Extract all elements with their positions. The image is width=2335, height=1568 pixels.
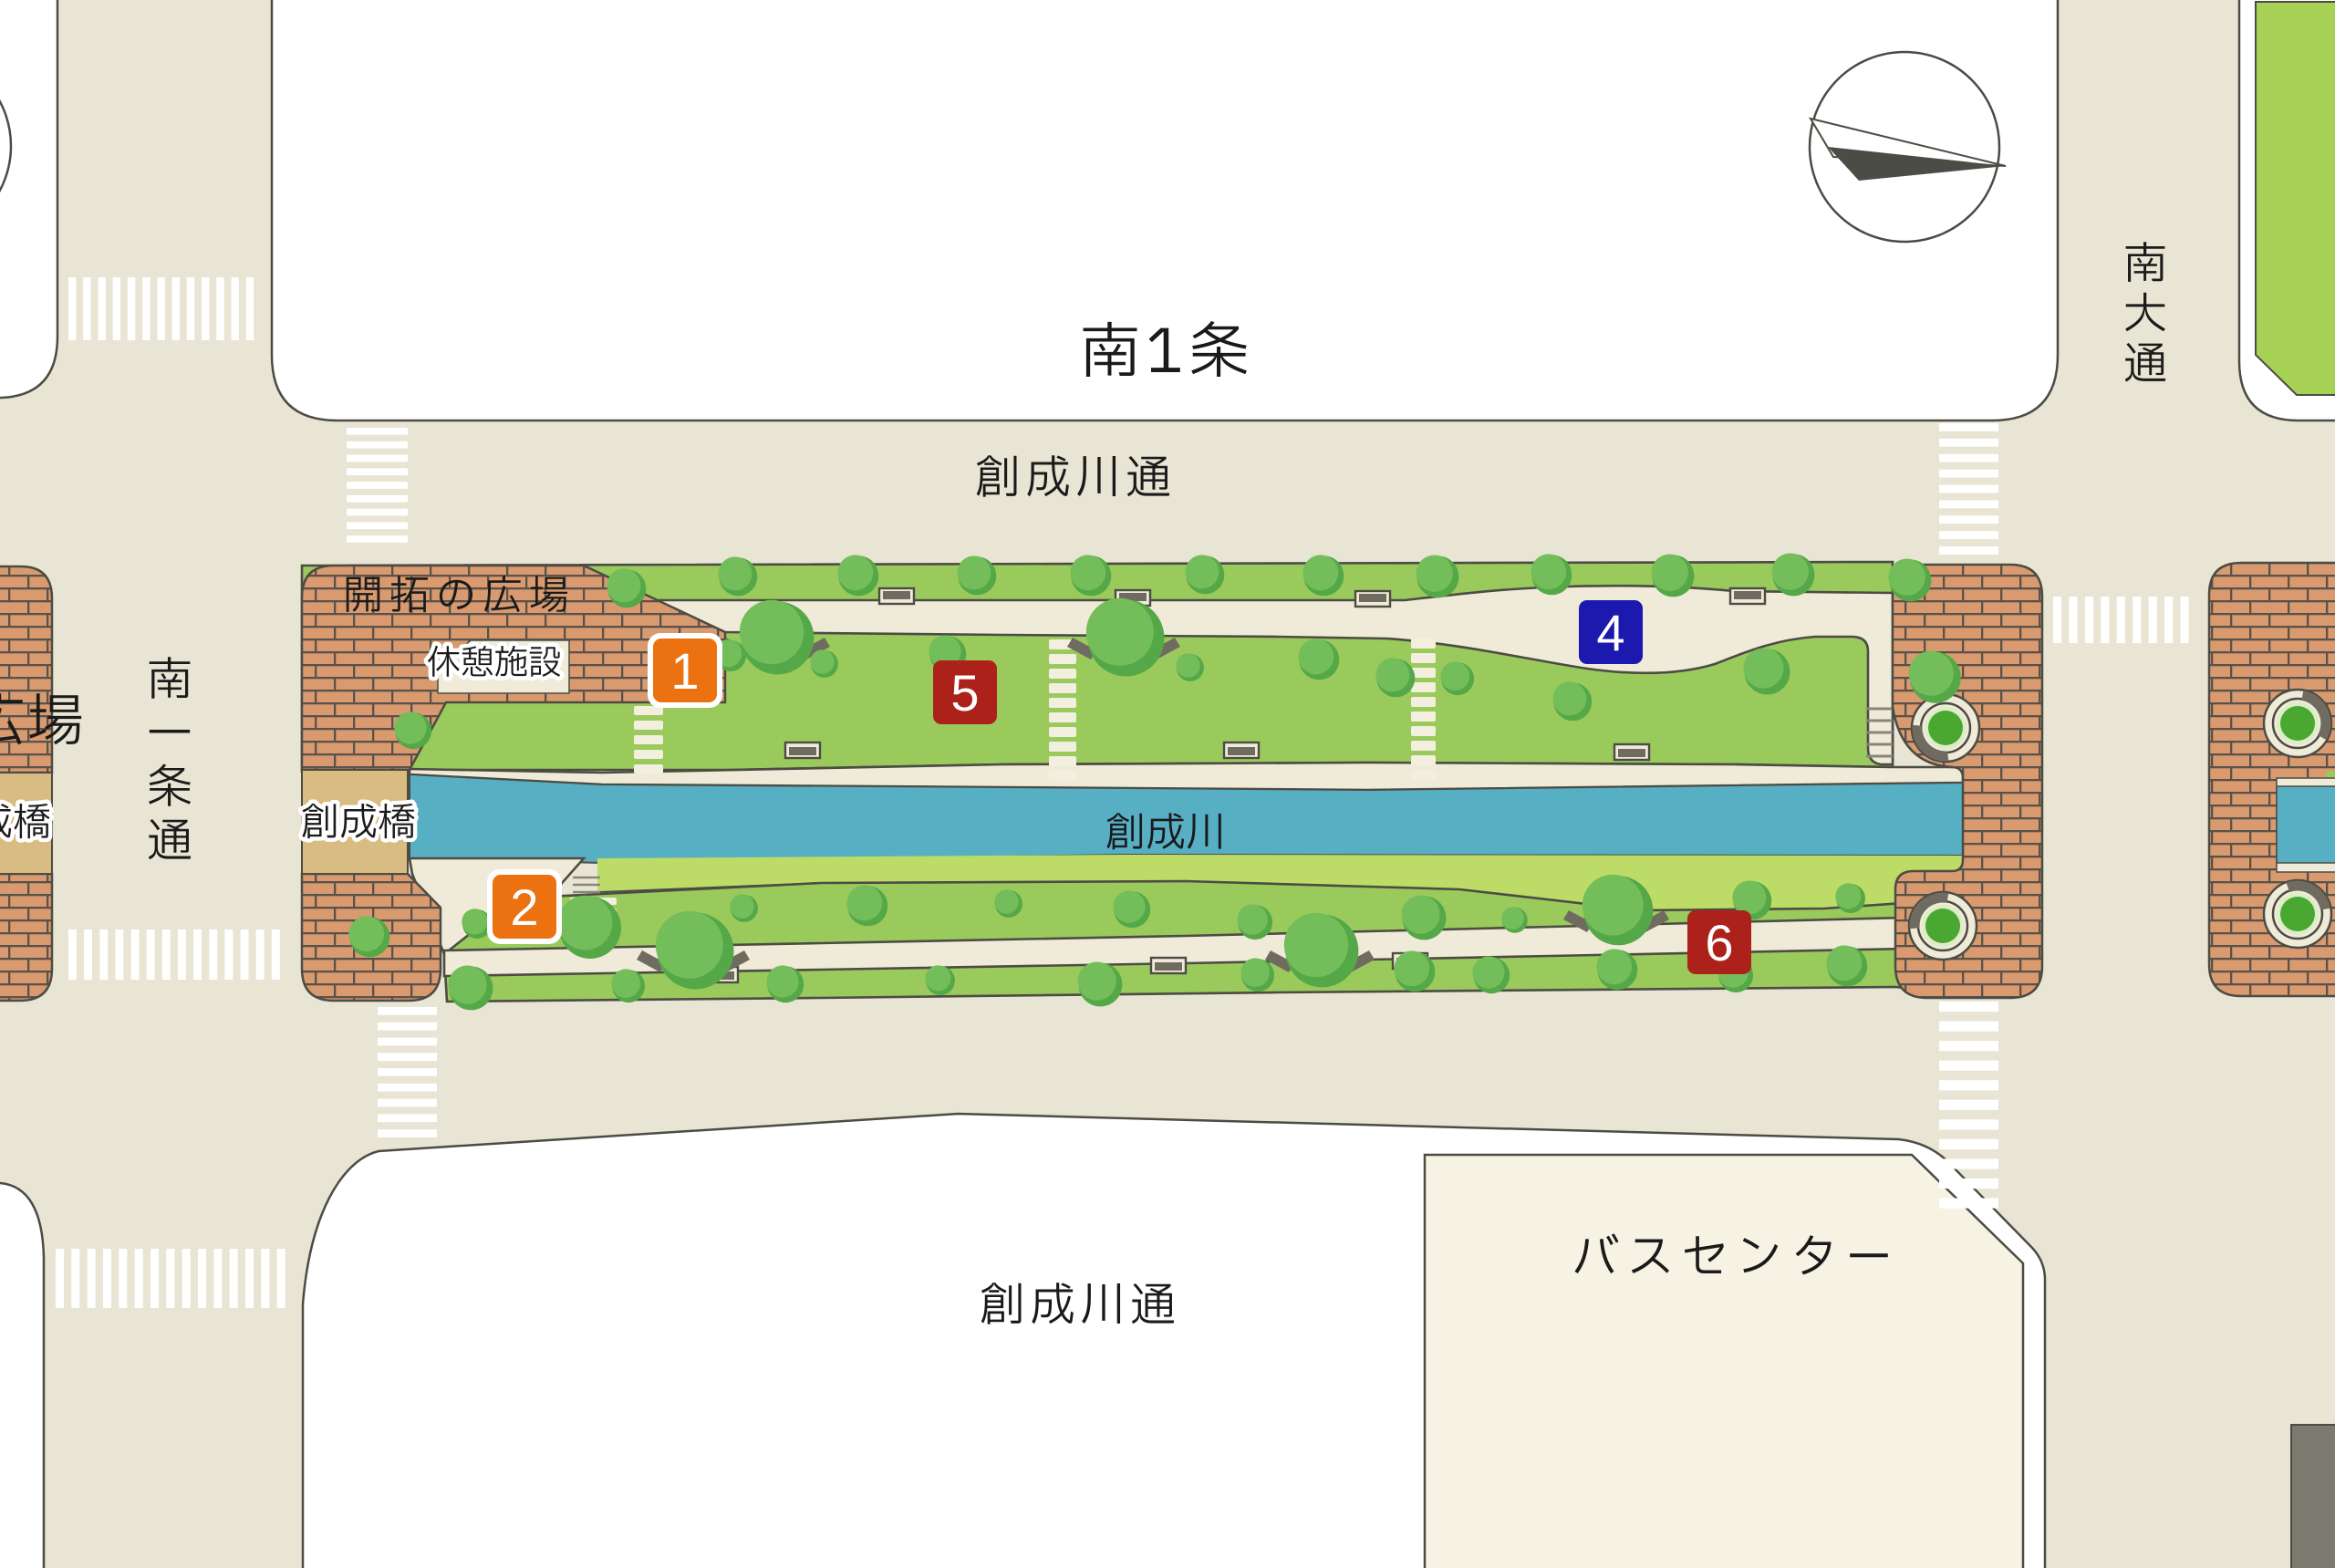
svg-text:5: 5 xyxy=(950,664,979,722)
svg-text:6: 6 xyxy=(1705,914,1733,971)
svg-text:1: 1 xyxy=(670,642,699,700)
svg-text:4: 4 xyxy=(1596,604,1624,661)
svg-text:2: 2 xyxy=(510,878,538,936)
